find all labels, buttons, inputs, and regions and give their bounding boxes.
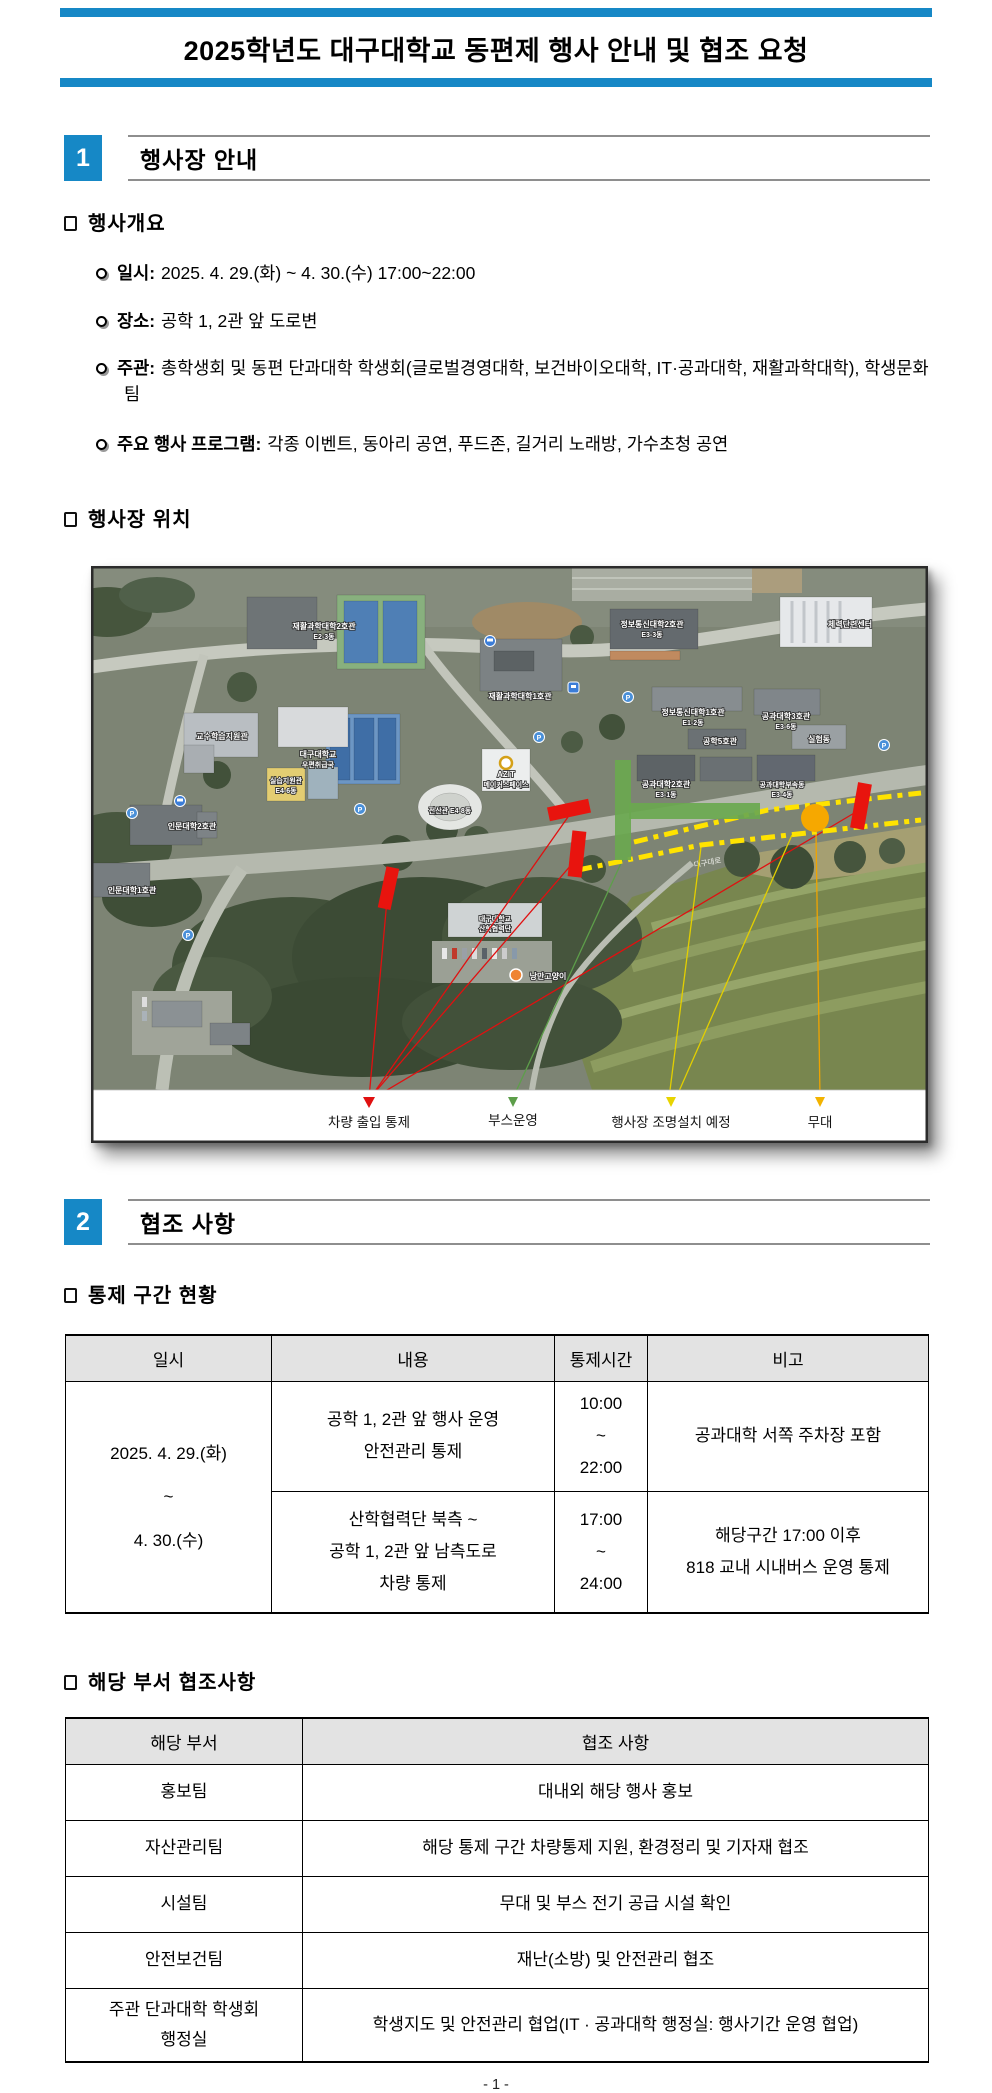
parking-icon: P — [879, 740, 890, 751]
event-overview-heading: 행사개요 — [64, 207, 930, 236]
building-label: 공과대학부속동 — [759, 780, 805, 789]
building-label: 우편취급국 — [302, 760, 335, 769]
parking-icon: P — [534, 732, 545, 743]
svg-text:P: P — [358, 807, 363, 814]
section-2-header: 2 협조 사항 — [64, 1199, 930, 1245]
event-program-item: 주요 행사 프로그램:각종 이벤트, 동아리 공연, 푸드존, 길거리 노래방,… — [96, 431, 930, 457]
building-label: E1-2동 — [682, 719, 704, 727]
table-row: 2025. 4. 29.(화) ~ 4. 30.(수) 공학 1, 2관 앞 행… — [66, 1381, 929, 1491]
cell-datetime: 2025. 4. 29.(화) ~ 4. 30.(수) — [66, 1381, 272, 1613]
table-row: 주관 단과대학 학생회 행정실 학생지도 및 안전관리 협업(IT · 공과대학… — [66, 1988, 929, 2062]
document-title: 2025학년도 대구대학교 동편제 행사 안내 및 협조 요청 — [60, 29, 932, 68]
table-row: 홍보팀 대내외 해당 행사 홍보 — [66, 1764, 929, 1820]
square-bullet-icon — [64, 1675, 77, 1690]
cell-dept: 안전보건팀 — [66, 1932, 303, 1988]
table-header-row: 해당 부서 협조 사항 — [66, 1718, 929, 1764]
svg-text:P: P — [186, 933, 191, 940]
venue-satellite-map: P P P P P P 재활과학대학2호관 E2-3동 재활과학대학1호관 정보… — [91, 566, 928, 1143]
building-label: E3-3동 — [641, 631, 663, 639]
cell-time: 10:00 ~ 22:00 — [555, 1381, 648, 1491]
bus-stop-icon — [175, 796, 186, 807]
col-header-coop: 협조 사항 — [303, 1718, 929, 1764]
table-row: 안전보건팀 재난(소방) 및 안전관리 협조 — [66, 1932, 929, 1988]
cell-content: 공학 1, 2관 앞 행사 운영 안전관리 통제 — [272, 1381, 555, 1491]
building-label: AZIT — [497, 770, 515, 779]
building-label: 공학5호관 — [703, 736, 738, 746]
building-label: 재활과학대학1호관 — [488, 691, 552, 701]
building-label: E2-3동 — [313, 633, 335, 641]
circle-bullet-icon — [96, 439, 107, 450]
building-label: E3-6동 — [775, 723, 797, 731]
col-header-time: 통제시간 — [555, 1335, 648, 1381]
legend-label-control: 차량 출입 통제 — [328, 1115, 410, 1130]
parking-icon: P — [183, 930, 194, 941]
building-label: 대구대학교 — [479, 914, 512, 923]
building-label: 인문대학1호관 — [108, 885, 157, 895]
building-label: 정보통신대학2호관 — [620, 619, 684, 629]
cell-dept: 자산관리팀 — [66, 1820, 303, 1876]
building-label: 전산관 E4-8동 — [429, 806, 472, 815]
poi-label: 낭만고양이 — [530, 971, 567, 981]
dept-coop-heading: 해당 부서 협조사항 — [64, 1666, 930, 1695]
title-top-bar — [60, 8, 932, 17]
building-label: 정보통신대학1호관 — [661, 707, 725, 717]
col-header-content: 내용 — [272, 1335, 555, 1381]
building-label: E3-1동 — [655, 791, 677, 799]
cell-coop: 해당 통제 구간 차량통제 지원, 환경정리 및 기자재 협조 — [303, 1820, 929, 1876]
building-label: 산학협력단 — [479, 924, 512, 933]
booth-zone-bar — [629, 803, 760, 819]
circle-bullet-icon — [96, 316, 107, 327]
col-header-note: 비고 — [648, 1335, 929, 1381]
section-1-title: 행사장 안내 — [128, 135, 930, 181]
table-row: 자산관리팀 해당 통제 구간 차량통제 지원, 환경정리 및 기자재 협조 — [66, 1820, 929, 1876]
building-label: 공과대학3호관 — [762, 711, 811, 721]
page-number: - 1 - — [0, 2077, 992, 2093]
square-bullet-icon — [64, 1288, 77, 1303]
building-label: 대구대학교 — [300, 749, 337, 759]
building-label: 인문대학2호관 — [168, 821, 217, 831]
cell-content: 산학협력단 북측 ~ 공학 1, 2관 앞 남측도로 차량 통제 — [272, 1491, 555, 1613]
booth-zone-bar — [615, 760, 631, 860]
control-section-heading: 통제 구간 현황 — [64, 1279, 930, 1308]
svg-text:P: P — [882, 743, 887, 750]
title-bottom-bar — [60, 78, 932, 87]
map-image: P P P P P P 재활과학대학2호관 E2-3동 재활과학대학1호관 정보… — [92, 567, 927, 1142]
square-bullet-icon — [64, 512, 77, 527]
dept-coop-table: 해당 부서 협조 사항 홍보팀 대내외 해당 행사 홍보 자산관리팀 해당 통제… — [65, 1717, 929, 2063]
section-2-number: 2 — [64, 1199, 102, 1245]
circle-bullet-icon — [96, 363, 107, 374]
section-1-number: 1 — [64, 135, 102, 181]
building-label: E3-4동 — [771, 791, 793, 799]
legend-label-booth: 부스운영 — [488, 1113, 538, 1128]
building-label: 재활과학대학2호관 — [292, 621, 356, 631]
building-label: 교수학습지원관 — [196, 731, 248, 741]
cell-note: 공과대학 서쪽 주차장 포함 — [648, 1381, 929, 1491]
cell-dept: 시설팀 — [66, 1876, 303, 1932]
svg-text:P: P — [626, 695, 631, 702]
cell-dept: 홍보팀 — [66, 1764, 303, 1820]
circle-bullet-icon — [96, 268, 107, 279]
cell-dept: 주관 단과대학 학생회 행정실 — [66, 1988, 303, 2062]
section-2-title: 협조 사항 — [128, 1199, 930, 1245]
venue-location-heading: 행사장 위치 — [64, 503, 930, 532]
square-bullet-icon — [64, 216, 77, 231]
event-host-item: 주관:총학생회 및 동편 단과대학 학생회(글로벌경영대학, 보건바이오대학, … — [96, 355, 930, 408]
building-label: E4-6동 — [275, 787, 297, 795]
cell-coop: 대내외 해당 행사 홍보 — [303, 1764, 929, 1820]
event-date-item: 일시:2025. 4. 29.(화) ~ 4. 30.(수) 17:00~22:… — [96, 260, 930, 286]
map-legend: 차량 출입 통제 부스운영 행사장 조명설치 예정 무대 — [92, 1090, 927, 1142]
bus-stop-icon — [485, 636, 496, 647]
table-row: 시설팀 무대 및 부스 전기 공급 시설 확인 — [66, 1876, 929, 1932]
control-section-table: 일시 내용 통제시간 비고 2025. 4. 29.(화) ~ 4. 30.(수… — [65, 1334, 929, 1614]
legend-label-lighting: 행사장 조명설치 예정 — [611, 1115, 730, 1130]
bus-stop-icon — [568, 682, 579, 693]
cat-cafe-icon — [510, 969, 522, 981]
svg-text:P: P — [130, 811, 135, 818]
building-label: 체력단련센터 — [828, 619, 872, 629]
col-header-datetime: 일시 — [66, 1335, 272, 1381]
parking-icon: P — [355, 804, 366, 815]
building-label: 실습지원관 — [270, 776, 303, 785]
building-label: 메이커스페이스 — [483, 780, 529, 789]
event-place-item: 장소:공학 1, 2관 앞 도로변 — [96, 308, 930, 334]
cell-time: 17:00 ~ 24:00 — [555, 1491, 648, 1613]
col-header-dept: 해당 부서 — [66, 1718, 303, 1764]
table-header-row: 일시 내용 통제시간 비고 — [66, 1335, 929, 1381]
stage-marker — [801, 804, 829, 832]
svg-text:P: P — [537, 735, 542, 742]
cell-coop: 학생지도 및 안전관리 협업(IT · 공과대학 행정실: 행사기간 운영 협업… — [303, 1988, 929, 2062]
building-label: 공과대학2호관 — [642, 779, 691, 789]
cell-coop: 무대 및 부스 전기 공급 시설 확인 — [303, 1876, 929, 1932]
building-label: 실험동 — [808, 734, 831, 744]
parking-icon: P — [127, 808, 138, 819]
section-1-header: 1 행사장 안내 — [64, 135, 930, 181]
cell-note: 해당구간 17:00 이후 818 교내 시내버스 운영 통제 — [648, 1491, 929, 1613]
parking-icon: P — [623, 692, 634, 703]
cell-coop: 재난(소방) 및 안전관리 협조 — [303, 1932, 929, 1988]
legend-label-stage: 무대 — [808, 1115, 833, 1130]
